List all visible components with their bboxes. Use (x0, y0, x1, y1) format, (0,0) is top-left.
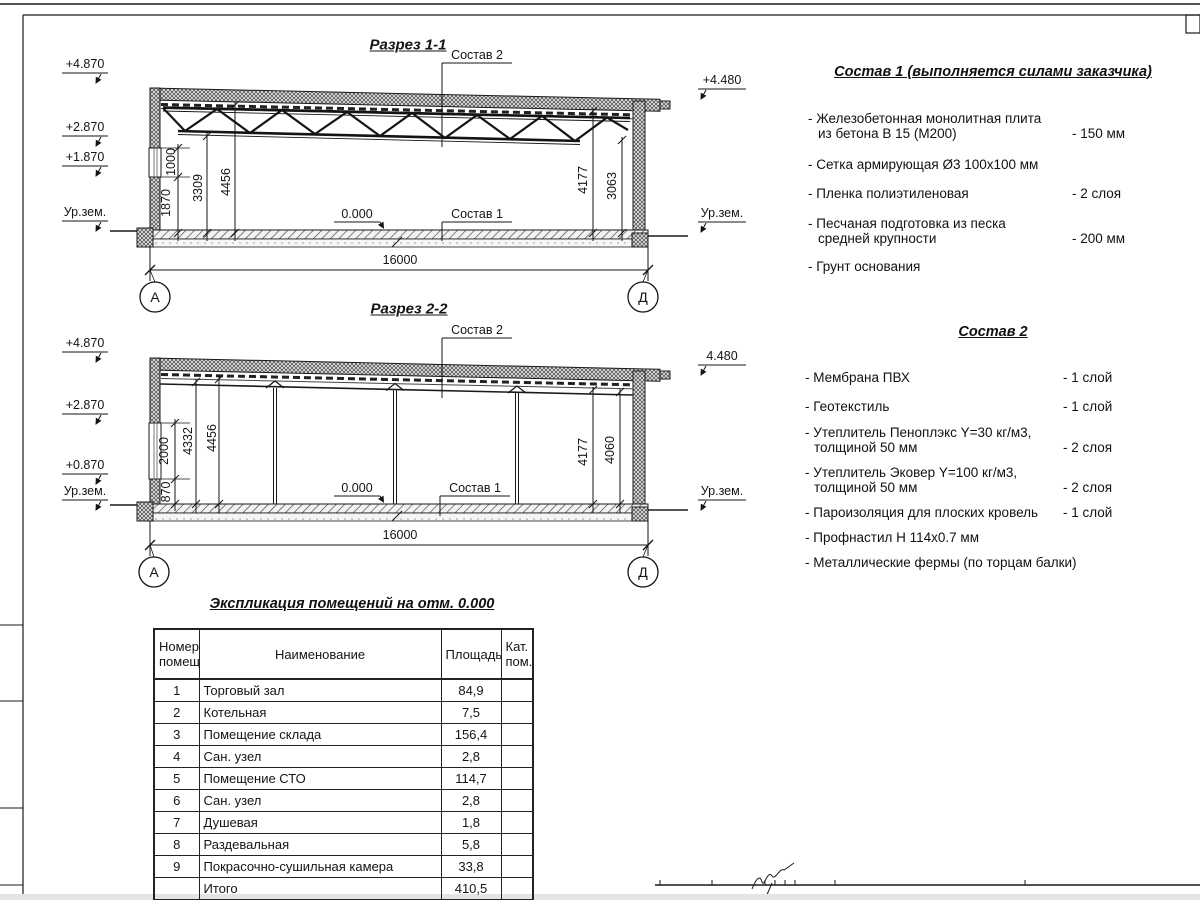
table-row: 7Душевая1,8 (154, 812, 533, 834)
sostav1-title: Состав 1 (выполняется силами заказчика) (834, 64, 1152, 80)
dim-label: 1870 (160, 189, 173, 217)
vertical-dimensions-2 (160, 375, 624, 513)
section-1-1-drawing (62, 63, 746, 312)
room-schedule-table: Номерпомещ. Наименование Площадь Кат.пом… (153, 628, 534, 900)
table-row: 6Сан. узел2,8 (154, 790, 533, 812)
table-header-row: Номерпомещ. Наименование Площадь Кат.пом… (154, 629, 533, 679)
axis-bubble-a: А (149, 565, 158, 579)
table-row: 1Торговый зал84,9 (154, 679, 533, 702)
material-item: - Утеплитель Пеноплэкс Y=30 кг/м3, (805, 426, 1031, 441)
sostav2-title: Состав 2 (958, 324, 1027, 340)
material-item: - Металлические фермы (по торцам балки) (805, 556, 1077, 571)
dim-label: 3309 (192, 174, 205, 202)
dim-label: 4332 (182, 427, 195, 455)
axis-bubble-a: А (150, 290, 159, 304)
table-row: 3Помещение склада156,4 (154, 724, 533, 746)
table-row-total: Итого410,5 (154, 878, 533, 900)
material-item: - Пленка полиэтиленовая (808, 187, 969, 202)
material-value: - 1 слой (1063, 400, 1112, 415)
material-item: - Утеплитель Эковер Y=100 кг/м3, (805, 466, 1017, 481)
dim-label: 4177 (577, 438, 590, 466)
elevation-label: +2.870 (66, 399, 105, 412)
leader-label-sostav2: Состав 2 (451, 324, 503, 337)
section-2-title: Разрез 2-2 (370, 302, 447, 317)
elevation-label: +0.870 (66, 459, 105, 472)
table-row: 5Помещение СТО114,7 (154, 768, 533, 790)
table-row: 8Раздевальная5,8 (154, 834, 533, 856)
material-item: - Пароизоляция для плоских кровель (805, 506, 1038, 521)
leader-label-sostav2: Состав 2 (451, 49, 503, 62)
dim-label: 4456 (220, 168, 233, 196)
elevation-label: +4.480 (703, 74, 742, 87)
col-header-cat: Кат.пом. (501, 629, 533, 679)
span-dim-label: 16000 (383, 254, 418, 267)
elevation-label: +4.870 (66, 337, 105, 350)
span-dim-label: 16000 (383, 529, 418, 542)
material-item: - Грунт основания (808, 260, 920, 275)
elevation-label: +1.870 (66, 151, 105, 164)
elevation-label: +2.870 (66, 121, 105, 134)
ground-level-label: Ур.зем. (64, 206, 106, 219)
material-value: - 1 слой (1063, 371, 1112, 386)
material-value: - 150 мм (1072, 127, 1125, 142)
ground-level-label: Ур.зем. (701, 207, 743, 220)
zero-level-label: 0.000 (341, 208, 372, 221)
ground-level-label: Ур.зем. (64, 485, 106, 498)
dim-label: 870 (160, 482, 173, 503)
material-item: толщиной 50 мм (814, 441, 917, 456)
material-value: - 200 мм (1072, 232, 1125, 247)
table-row: 2Котельная7,5 (154, 702, 533, 724)
material-value: - 2 слоя (1063, 441, 1112, 456)
axis-bubble-d: Д (638, 290, 647, 304)
dim-label: 3063 (606, 172, 619, 200)
material-item: - Песчаная подготовка из песка (808, 217, 1006, 232)
drawing-sheet: Разрез 1-1 +4.870 +2.870 +1.870 Ур.зем. … (0, 0, 1200, 900)
material-value: - 2 слоя (1063, 481, 1112, 496)
col-header-num: Номерпомещ. (154, 629, 199, 679)
dim-label: 4060 (604, 436, 617, 464)
table-row: 9Покрасочно-сушильная камера33,8 (154, 856, 533, 878)
leader-label-sostav1: Состав 1 (451, 208, 503, 221)
elevation-label: 4.480 (706, 350, 737, 363)
section-1-title: Разрез 1-1 (369, 38, 446, 53)
leader-label-sostav1: Состав 1 (449, 482, 501, 495)
elevation-label: +4.870 (66, 58, 105, 71)
dim-label: 4177 (577, 166, 590, 194)
material-item: - Профнастил Н 114х0.7 мм (805, 531, 979, 546)
dim-label: 4456 (206, 424, 219, 452)
material-item: средней крупности (818, 232, 936, 247)
col-header-name: Наименование (199, 629, 441, 679)
table-row: 4Сан. узел2,8 (154, 746, 533, 768)
material-value: - 2 слоя (1072, 187, 1121, 202)
dim-label: 2000 (158, 437, 171, 465)
material-item: из бетона В 15 (М200) (818, 127, 957, 142)
material-item: - Геотекстиль (805, 400, 889, 415)
ground-level-label: Ур.зем. (701, 485, 743, 498)
material-item: толщиной 50 мм (814, 481, 917, 496)
dim-label: 1000 (165, 148, 178, 176)
material-item: - Железобетонная монолитная плита (808, 112, 1041, 127)
room-schedule-title: Экспликация помещений на отм. 0.000 (210, 596, 495, 612)
window-opening (149, 148, 161, 177)
zero-level-label: 0.000 (341, 482, 372, 495)
col-header-area: Площадь (441, 629, 501, 679)
material-item: - Сетка армирующая Ø3 100х100 мм (808, 158, 1038, 173)
material-item: - Мембрана ПВХ (805, 371, 910, 386)
material-value: - 1 слой (1063, 506, 1112, 521)
axis-bubble-d: Д (638, 565, 647, 579)
